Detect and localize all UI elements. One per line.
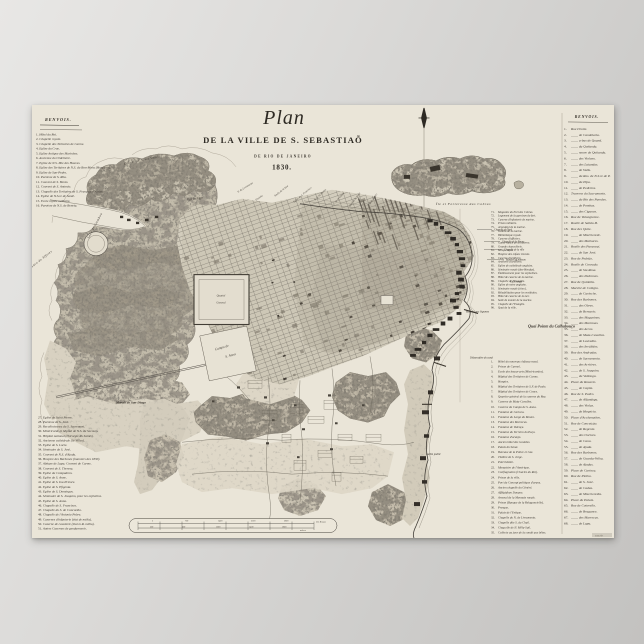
svg-text:5.: 5.: [491, 380, 494, 384]
svg-text:40.: 40.: [564, 357, 568, 361]
svg-text:General: General: [216, 302, 225, 305]
svg-text:41. Eglise de S. Ina Prieure.: 41. Eglise de S. Ina Prieure.: [38, 480, 75, 484]
svg-text:Ecole des beaux-arts (Misérico: Ecole des beaux-arts (Miséricordes).: [497, 369, 544, 373]
svg-text:49.: 49.: [564, 409, 568, 413]
svg-text:Fontaine de Valença.: Fontaine de Valença.: [497, 425, 524, 429]
svg-text:11.: 11.: [491, 410, 495, 414]
svg-text:____ de Pombas.: ____ de Pombas.: [570, 203, 595, 207]
svg-text:37. Abbaye de Lapa; Couvent de: 37. Abbaye de Lapa; Couvent de Carme.: [38, 462, 92, 466]
svg-text:11.: 11.: [564, 186, 568, 190]
svg-text:7. Eglise de N.S. Mie des Hour: 7. Eglise de N.S. Mie des Houras.: [36, 161, 81, 165]
svg-text:Ancien chapelle du Généré.: Ancien chapelle du Généré.: [497, 485, 532, 489]
svg-text:9. Eglise de San-Pedro.: 9. Eglise de San-Pedro.: [36, 170, 67, 174]
svg-text:27. Eglise de Saint Pierre.: 27. Eglise de Saint Pierre.: [38, 415, 73, 419]
svg-text:Prison (Banque de la Relagonci: Prison (Banque de la Relagoncielle).: [497, 500, 544, 504]
svg-text:Fontaine d'aranjo.: Fontaine d'aranjo.: [497, 435, 521, 439]
svg-text:7.: 7.: [564, 162, 567, 166]
svg-text:16. Paroisse de N.S. de Beneta: 16. Paroisse de N.S. de Beneta.: [36, 204, 77, 208]
svg-text:46. Chapelle de S. Francisco.: 46. Chapelle de S. Francisco.: [38, 503, 77, 507]
svg-text:____ du Ros. de N.S.re de P.: ____ du Ros. de N.S.re de P.: [570, 174, 611, 178]
svg-text:____ de Alfandega.: ____ de Alfandega.: [570, 398, 598, 402]
svg-text:6.: 6.: [491, 385, 494, 389]
svg-text:____ de Mata-Cavallos.: ____ de Mata-Cavallos.: [570, 333, 605, 337]
svg-text:29. Recollecteuses du S. Sacre: 29. Recollecteuses du S. Sacrement.: [38, 425, 85, 429]
svg-text:29.: 29.: [491, 500, 495, 504]
svg-text:50.: 50.: [564, 415, 568, 419]
svg-text:48. Chapelle de l'Antonio Pobr: 48. Chapelle de l'Antonio Pobre.: [38, 513, 81, 517]
svg-text:26.: 26.: [491, 485, 495, 489]
svg-text:Hôpital des Tertiaires de Carm: Hôpital des Tertiaires de Carme.: [497, 375, 539, 379]
svg-text:Palais de l'Evêque.: Palais de l'Evêque.: [497, 511, 522, 515]
svg-text:8.: 8.: [564, 168, 567, 172]
svg-text:____ de Hospicio.: ____ de Hospicio.: [570, 409, 597, 413]
svg-text:40. Eglise de S. Anne.: 40. Eglise de S. Anne.: [38, 476, 67, 480]
svg-text:30.: 30.: [491, 506, 495, 510]
svg-text:27.: 27.: [491, 490, 495, 494]
svg-text:36. Hospice des Barbones (bann: 36. Hospice des Barbones (banniers des 1…: [38, 457, 100, 461]
svg-text:Hôpital des Tertiaires de S.F.: Hôpital des Tertiaires de S.F. de Paule.: [497, 385, 546, 389]
svg-text:Conflagration (Charles du Roi): Conflagration (Charles du Roi).: [498, 470, 538, 474]
svg-text:43.: 43.: [564, 374, 568, 378]
svg-text:Ruelle de Sabâo-B.: Ruelle de Sabâo-B.: [570, 221, 598, 225]
svg-text:47.: 47.: [564, 398, 568, 402]
svg-text:38. Couvent de S. Theresa.: 38. Couvent de S. Theresa.: [38, 466, 73, 470]
svg-text:61.: 61.: [564, 480, 568, 484]
svg-text:14. Eglise de N.S.re de Santé.: 14. Eglise de N.S.re de Santé.: [36, 194, 75, 198]
svg-text:31. Hôpital national (chirurgi: 31. Hôpital national (chirurgie du Saint…: [38, 434, 94, 438]
svg-text:33. Eglise de S. Lucie.: 33. Eglise de S. Lucie.: [38, 443, 67, 447]
svg-text:3.: 3.: [564, 139, 567, 143]
svg-text:24.: 24.: [491, 475, 495, 479]
svg-text:21.: 21.: [564, 245, 568, 249]
svg-text:1.: 1.: [564, 127, 567, 131]
svg-text:10.: 10.: [564, 180, 568, 184]
svg-text:18.: 18.: [564, 227, 568, 231]
svg-text:28. Paroisse de S. José.: 28. Paroisse de S. José.: [38, 420, 69, 424]
svg-text:15. Ecole royale militaire.: 15. Ecole royale militaire.: [36, 199, 71, 203]
svg-text:12. Couvent de S. Antonio.: 12. Couvent de S. Antonio.: [36, 185, 71, 189]
svg-text:28.: 28.: [564, 286, 568, 290]
svg-text:____ des Ourives.: ____ des Ourives.: [570, 433, 596, 437]
svg-text:64.: 64.: [564, 498, 568, 502]
svg-text:____ des Obres.: ____ des Obres.: [570, 304, 594, 308]
svg-text:60.: 60.: [564, 474, 568, 478]
svg-text:13. Chapelle des Tertiaires de: 13. Chapelle des Tertiaires de S. Franço…: [36, 189, 104, 193]
svg-text:____ de Capim.: ____ de Capim.: [570, 386, 593, 390]
svg-text:Place d'Acclamation.: Place d'Acclamation.: [570, 415, 601, 419]
svg-text:Place du Rosario.: Place du Rosario.: [570, 380, 596, 384]
svg-text:8.: 8.: [491, 395, 494, 399]
svg-text:____ de S. Joaquim.: ____ de S. Joaquim.: [570, 368, 600, 372]
svg-text:Marché au poisson: Marché au poisson: [505, 259, 526, 262]
svg-text:Rue de Pedrijo.: Rue de Pedrijo.: [570, 256, 593, 260]
svg-text:____ de Sacramento.: ____ de Sacramento.: [570, 357, 601, 361]
svg-text:Collecte au jour de la condé a: Collecte au jour de la condé aux bêtes.: [498, 531, 546, 535]
svg-text:____ des Violons.: ____ des Violons.: [570, 156, 596, 160]
svg-text:22.: 22.: [564, 251, 568, 255]
svg-text:Prison de la ville.: Prison de la ville.: [497, 475, 520, 479]
svg-text:Bureaux de la Police et Caz.: Bureaux de la Police et Caz.: [498, 450, 533, 454]
svg-text:42. Eglise de S. Efigenia.: 42. Eglise de S. Efigenia.: [38, 485, 71, 489]
svg-text:17.: 17.: [564, 221, 568, 225]
svg-text:____ de S. José.: ____ de S. José.: [570, 480, 594, 484]
svg-text:Fontaine du Terreiro du Paço.: Fontaine du Terreiro du Paço.: [497, 430, 536, 434]
svg-text:50. Caserne de cavalerie (état: 50. Caserne de cavalerie (état m.R. méli…: [38, 522, 95, 526]
svg-text:Fontaine de Carioca.: Fontaine de Carioca.: [497, 410, 525, 414]
svg-text:45.: 45.: [564, 386, 568, 390]
svg-text:Place de Carioca.: Place de Carioca.: [570, 468, 596, 472]
svg-text:65.: 65.: [564, 504, 568, 508]
svg-text:Cin Braças: Cin Braças: [316, 522, 326, 524]
svg-text:32. Ancienne cathédrale (St-Vi: 32. Ancienne cathédrale (St-Villes).: [38, 438, 85, 442]
svg-text:25.: 25.: [564, 268, 568, 272]
svg-text:Rue des Barbonos.: Rue des Barbonos.: [570, 451, 597, 455]
svg-text:Hôpital des Tertiaires de Conc: Hôpital des Tertiaires de Conce.: [497, 390, 538, 394]
svg-text:____ de Candelaria.: ____ de Candelaria.: [570, 133, 600, 137]
svg-text:16.: 16.: [491, 435, 495, 439]
svg-text:31.: 31.: [564, 304, 568, 308]
svg-text:26.: 26.: [564, 274, 568, 278]
svg-text:DE LA VILLE DE S. SEBASTIAÕ: DE LA VILLE DE S. SEBASTIAÕ: [203, 135, 363, 145]
svg-text:Rue de Quintilia.: Rue de Quintilia.: [570, 280, 595, 284]
svg-text:____ de Bersario.: ____ de Bersario.: [570, 309, 596, 313]
svg-text:____ du Vallongo.: ____ du Vallongo.: [570, 374, 597, 378]
svg-text:30.: 30.: [564, 298, 568, 302]
svg-text:15.: 15.: [564, 209, 568, 213]
svg-text:____ des Magasines.: ____ des Magasines.: [570, 315, 600, 319]
svg-text:7.: 7.: [491, 390, 494, 394]
svg-text:48.: 48.: [564, 404, 568, 408]
svg-text:Rue des Quite.: Rue des Quite.: [570, 227, 592, 231]
svg-text:Île et Forteresse das Cobras: Île et Forteresse das Cobras: [435, 201, 491, 206]
svg-text:____ neuve de Quitanda.: ____ neuve de Quitanda.: [570, 150, 606, 154]
svg-text:3.: 3.: [491, 369, 494, 373]
svg-text:____ de San José.: ____ de San José.: [570, 251, 596, 255]
svg-text:____ des Arrières.: ____ des Arrières.: [570, 362, 597, 366]
svg-text:____ de Misericordia.: ____ de Misericordia.: [570, 492, 602, 496]
svg-text:5.: 5.: [564, 150, 567, 154]
svg-text:____ de Valla.: ____ de Valla.: [570, 168, 591, 172]
svg-text:RENVOIS.: RENVOIS.: [45, 117, 72, 122]
svg-text:36.: 36.: [564, 333, 568, 337]
svg-text:9.: 9.: [491, 400, 494, 404]
svg-text:29.: 29.: [564, 292, 568, 296]
svg-text:1.: 1.: [491, 359, 494, 363]
svg-text:51.: 51.: [564, 421, 568, 425]
svg-text:4.: 4.: [564, 145, 567, 149]
svg-text:32.: 32.: [564, 309, 568, 313]
svg-text:10. Paroisse de S. Rita.: 10. Paroisse de S. Rita.: [36, 175, 67, 179]
svg-text:34.: 34.: [491, 526, 495, 530]
svg-text:33.: 33.: [564, 315, 568, 319]
svg-text:39. Eglise du Compadron.: 39. Eglise du Compadron.: [38, 471, 73, 475]
svg-text:25.: 25.: [491, 480, 495, 484]
svg-text:zazzle: zazzle: [595, 533, 603, 537]
svg-text:4. Eglise du Crue.: 4. Eglise du Crue.: [36, 147, 60, 151]
svg-text:Chapelle de la ville: Chapelle de la ville: [504, 249, 525, 252]
svg-text:Rue de S. Pedro.: Rue de S. Pedro.: [570, 392, 594, 396]
svg-text:DE RIO DE JANEIRO: DE RIO DE JANEIRO: [254, 154, 312, 158]
svg-text:____ des Mathures.: ____ des Mathures.: [570, 239, 599, 243]
svg-text:18.: 18.: [491, 445, 495, 449]
svg-text:____ de Bragance.: ____ de Bragance.: [570, 510, 598, 514]
svg-text:Traverse du Sacramento.: Traverse du Sacramento.: [571, 192, 606, 196]
svg-text:14.: 14.: [491, 425, 495, 429]
svg-text:4.: 4.: [491, 375, 494, 379]
svg-text:Chapelle du Noel: Chapelle du Noel: [494, 229, 512, 232]
svg-text:44.: 44.: [564, 380, 568, 384]
svg-text:53.: 53.: [564, 433, 568, 437]
svg-text:Prison de Carmel.: Prison de Carmel.: [497, 364, 521, 368]
svg-text:8. Eglise des Tertiaires de N.: 8. Eglise des Tertiaires de N.S. du Bon-…: [36, 166, 111, 170]
svg-text:59.: 59.: [564, 468, 568, 472]
svg-text:28.: 28.: [491, 495, 495, 499]
svg-text:27.: 27.: [564, 280, 568, 284]
svg-text:58.: 58.: [564, 462, 568, 466]
svg-text:33.: 33.: [491, 521, 495, 525]
svg-text:____ des Violas.: ____ des Violas.: [570, 404, 594, 408]
svg-text:55.: 55.: [564, 445, 568, 449]
svg-text:46.: 46.: [564, 392, 568, 396]
svg-text:____ da Quitanda.: ____ da Quitanda.: [570, 145, 597, 149]
svg-text:38.: 38.: [564, 345, 568, 349]
svg-text:13.: 13.: [564, 198, 568, 202]
svg-text:62.: 62.: [564, 486, 568, 490]
svg-text:Chapelle de la Bonne: Chapelle de la Bonne: [502, 241, 525, 244]
svg-text:3. Chapelle des Tertiaires de: 3. Chapelle des Tertiaires de Carme.: [36, 142, 84, 146]
svg-text:Rue de Piolho.: Rue de Piolho.: [570, 474, 592, 478]
svg-text:35.: 35.: [491, 531, 495, 535]
svg-text:____ de Miséricorde.: ____ de Miséricorde.: [570, 233, 601, 237]
svg-text:2: 2: [152, 521, 153, 523]
svg-text:mètres: mètres: [300, 530, 306, 532]
svg-text:68.: 68.: [564, 521, 568, 525]
svg-text:13.: 13.: [491, 420, 495, 424]
svg-text:Ancien hôtel des Gouldes.: Ancien hôtel des Gouldes.: [497, 440, 530, 444]
svg-text:41.: 41.: [564, 362, 568, 366]
svg-text:Rue Droite.: Rue Droite.: [570, 127, 587, 131]
svg-text:____ de Guarda-Velha.: ____ de Guarda-Velha.: [570, 457, 604, 461]
svg-text:6. Ancienne du Ordelierte.: 6. Ancienne du Ordelierte.: [36, 156, 71, 160]
svg-text:Fontaine du Largo du Mouro.: Fontaine du Largo du Mouro.: [497, 415, 535, 419]
svg-text:67.: 67.: [564, 515, 568, 519]
svg-text:42.: 42.: [564, 368, 568, 372]
svg-text:Hôtel du nouveau château royal: Hôtel du nouveau château royal.: [497, 359, 539, 363]
svg-text:Palais du Senat.: Palais du Senat.: [497, 445, 518, 449]
svg-text:____ des Inválidos.: ____ des Inválidos.: [570, 345, 598, 349]
svg-text:Chapelle dite S. du Chail.: Chapelle dite S. du Chail.: [498, 521, 530, 525]
svg-text:Théâtre de S. Jorge.: Théâtre de S. Jorge.: [498, 455, 523, 459]
svg-text:Débarcadère du canal: Débarcadère du canal: [469, 356, 493, 359]
svg-text:2.: 2.: [564, 133, 567, 137]
svg-text:32.: 32.: [491, 516, 495, 520]
svg-text:____ de Cano.: ____ de Cano.: [570, 439, 592, 443]
svg-text:12.: 12.: [491, 415, 495, 419]
svg-text:35. Couvent de N.S. d'Ajuda.: 35. Couvent de N.S. d'Ajuda.: [38, 452, 76, 456]
svg-text:Caserne du Campo de S. Anna.: Caserne du Campo de S. Anna.: [498, 405, 537, 409]
svg-text:Rue de Conceiçào.: Rue de Conceiçào.: [570, 421, 597, 425]
svg-text:Chap.elle de N. Mêla-Sail.: Chap.elle de N. Mêla-Sail.: [498, 526, 531, 530]
svg-text:Marché aux légumes: Marché aux légumes: [465, 311, 489, 314]
svg-text:Cale royale: Cale royale: [510, 281, 523, 284]
svg-text:10.: 10.: [491, 405, 495, 409]
svg-text:____ du Pipa.: ____ du Pipa.: [570, 180, 591, 184]
svg-text:54.: 54.: [564, 439, 568, 443]
svg-text:Presque.: Presque.: [497, 506, 509, 510]
svg-text:34. Séminaire de S. José.: 34. Séminaire de S. José.: [38, 448, 71, 452]
svg-text:20.: 20.: [564, 239, 568, 243]
svg-text:96.: 96.: [491, 306, 495, 310]
svg-text:23.: 23.: [564, 256, 568, 260]
svg-text:2. Chapelle royale.: 2. Chapelle royale.: [36, 137, 61, 141]
svg-text:Fontaine des Marrecas.: Fontaine des Marrecas.: [497, 420, 528, 424]
svg-text:21.: 21.: [491, 460, 495, 464]
svg-text:31.: 31.: [491, 511, 495, 515]
svg-text:Caserne de Mata-Cavallos.: Caserne de Mata-Cavallos.: [498, 400, 532, 404]
svg-text:Marais de San-Diogo: Marais de San-Diogo: [115, 400, 146, 404]
svg-text:6.: 6.: [564, 156, 567, 160]
svg-text:20.: 20.: [491, 455, 495, 459]
svg-text:____ des Marrecas.: ____ des Marrecas.: [570, 515, 599, 519]
svg-text:12.: 12.: [564, 192, 568, 196]
svg-text:52.: 52.: [564, 427, 568, 431]
svg-text:Marché de Colègio.: Marché de Colègio.: [570, 286, 599, 290]
svg-text:45. Eglise de S. Anna.: 45. Eglise de S. Anna.: [38, 499, 67, 503]
svg-text:____ des Ciganos.: ____ des Ciganos.: [570, 209, 597, 213]
svg-text:19.: 19.: [564, 233, 568, 237]
svg-text:____ de Pedreira.: ____ de Pedreira.: [570, 186, 596, 190]
svg-text:37.: 37.: [564, 339, 568, 343]
svg-text:1. Hôtel du Roi.: 1. Hôtel du Roi.: [36, 132, 57, 136]
svg-text:23.: 23.: [491, 470, 495, 474]
svg-text:____ de Lapa.: ____ de Lapa.: [570, 521, 591, 525]
svg-text:____ a-bas de Quand.: ____ a-bas de Quand.: [570, 139, 602, 143]
svg-text:____ de Ajudas.: ____ de Ajudas.: [570, 462, 594, 466]
svg-text:____ de Lavradio.: ____ de Lavradio.: [570, 339, 597, 343]
svg-text:22.: 22.: [491, 465, 495, 469]
svg-text:63.: 63.: [564, 492, 568, 496]
svg-text:56.: 56.: [564, 451, 568, 455]
svg-text:Chapelle du N. de Livramento.: Chapelle du N. de Livramento.: [498, 516, 536, 520]
svg-text:16.: 16.: [564, 215, 568, 219]
svg-text:57.: 57.: [564, 457, 568, 461]
svg-text:Quartier général de la caserne: Quartier général de la caserne du Roy.: [498, 395, 546, 399]
svg-text:Jardin public: Jardin public: [426, 453, 442, 456]
svg-text:14.: 14.: [564, 203, 568, 207]
svg-text:Quai de la ville.: Quai de la ville.: [498, 306, 517, 310]
svg-text:5. Eglise Antique des Marinhos: 5. Eglise Antique des Marinhos.: [36, 151, 78, 155]
svg-text:____ du Rio des Paredes.: ____ du Rio des Paredes.: [570, 198, 607, 202]
svg-text:Place du Palais.: Place du Palais.: [570, 498, 594, 502]
svg-text:24.: 24.: [564, 262, 568, 266]
svg-text:39.: 39.: [564, 351, 568, 355]
svg-text:____ de Sta Rosa.: ____ de Sta Rosa.: [570, 268, 596, 272]
svg-text:____ des Padrones.: ____ des Padrones.: [570, 274, 599, 278]
svg-text:9.: 9.: [564, 174, 567, 178]
svg-text:____ de Carioche.: ____ de Carioche.: [570, 292, 597, 296]
svg-text:Monastère de l'Amérique.: Monastère de l'Amérique.: [497, 465, 530, 469]
svg-text:2.: 2.: [491, 364, 494, 368]
svg-text:____ de Ajuda.: ____ de Ajuda.: [570, 445, 592, 449]
svg-text:Arsenal de la Monnaie royale.: Arsenal de la Monnaie royale.: [497, 495, 536, 499]
svg-text:Hospice.: Hospice.: [497, 380, 509, 384]
svg-text:____ de Regente.: ____ de Regente.: [570, 427, 595, 431]
svg-text:Affligidium Douane.: Affligidium Douane.: [497, 490, 523, 494]
svg-text:____ de Cadea.: ____ de Cadea.: [570, 486, 593, 490]
svg-text:Quai Pointe du Calhabouço: Quai Pointe du Calhabouço: [528, 323, 575, 328]
svg-text:Rue des Barbones.: Rue des Barbones.: [570, 298, 597, 302]
svg-text:11. Couvent de S. Bento.: 11. Couvent de S. Bento.: [36, 180, 68, 184]
svg-text:Rue des Andradas.: Rue des Andradas.: [570, 351, 597, 355]
svg-text:43. Eglise de S. Domingos.: 43. Eglise de S. Domingos.: [38, 490, 74, 494]
svg-text:66.: 66.: [564, 510, 568, 514]
svg-text:Plan: Plan: [262, 107, 305, 129]
svg-text:30. Miséricorde et hôpital de: 30. Miséricorde et hôpital de N.S. de Se…: [38, 429, 99, 433]
svg-text:Quartel: Quartel: [217, 295, 226, 298]
svg-text:17.: 17.: [491, 440, 495, 444]
svg-text:Ruelle des Paraneai.: Ruelle des Paraneai.: [570, 245, 600, 249]
svg-text:51. Autres Casernes de gendarm: 51. Autres Casernes de gendarmerie.: [38, 527, 87, 531]
svg-text:Rue de Valongienne.: Rue de Valongienne.: [570, 215, 600, 219]
svg-text:Polé théâtre.: Polé théâtre.: [497, 460, 514, 464]
svg-text:1830.: 1830.: [272, 163, 292, 171]
svg-text:Port du Concept politique d'ar: Port du Concept politique d'aranz.: [497, 480, 541, 484]
svg-text:47. Chapelle du S. de Concordi: 47. Chapelle du S. de Concordio.: [38, 508, 82, 512]
svg-text:RENVOIS.: RENVOIS.: [575, 115, 599, 119]
svg-text:Ruelle de Conrado.: Ruelle de Conrado.: [570, 262, 598, 266]
svg-text:Rue de Cotovello.: Rue de Cotovello.: [570, 504, 596, 508]
svg-text:49. Casernes d'infanterie (éta: 49. Casernes d'infanterie (état de mélia…: [38, 517, 92, 521]
svg-text:19.: 19.: [491, 450, 495, 454]
svg-text:____ des Latandas.: ____ des Latandas.: [570, 162, 598, 166]
svg-text:15.: 15.: [491, 430, 495, 434]
